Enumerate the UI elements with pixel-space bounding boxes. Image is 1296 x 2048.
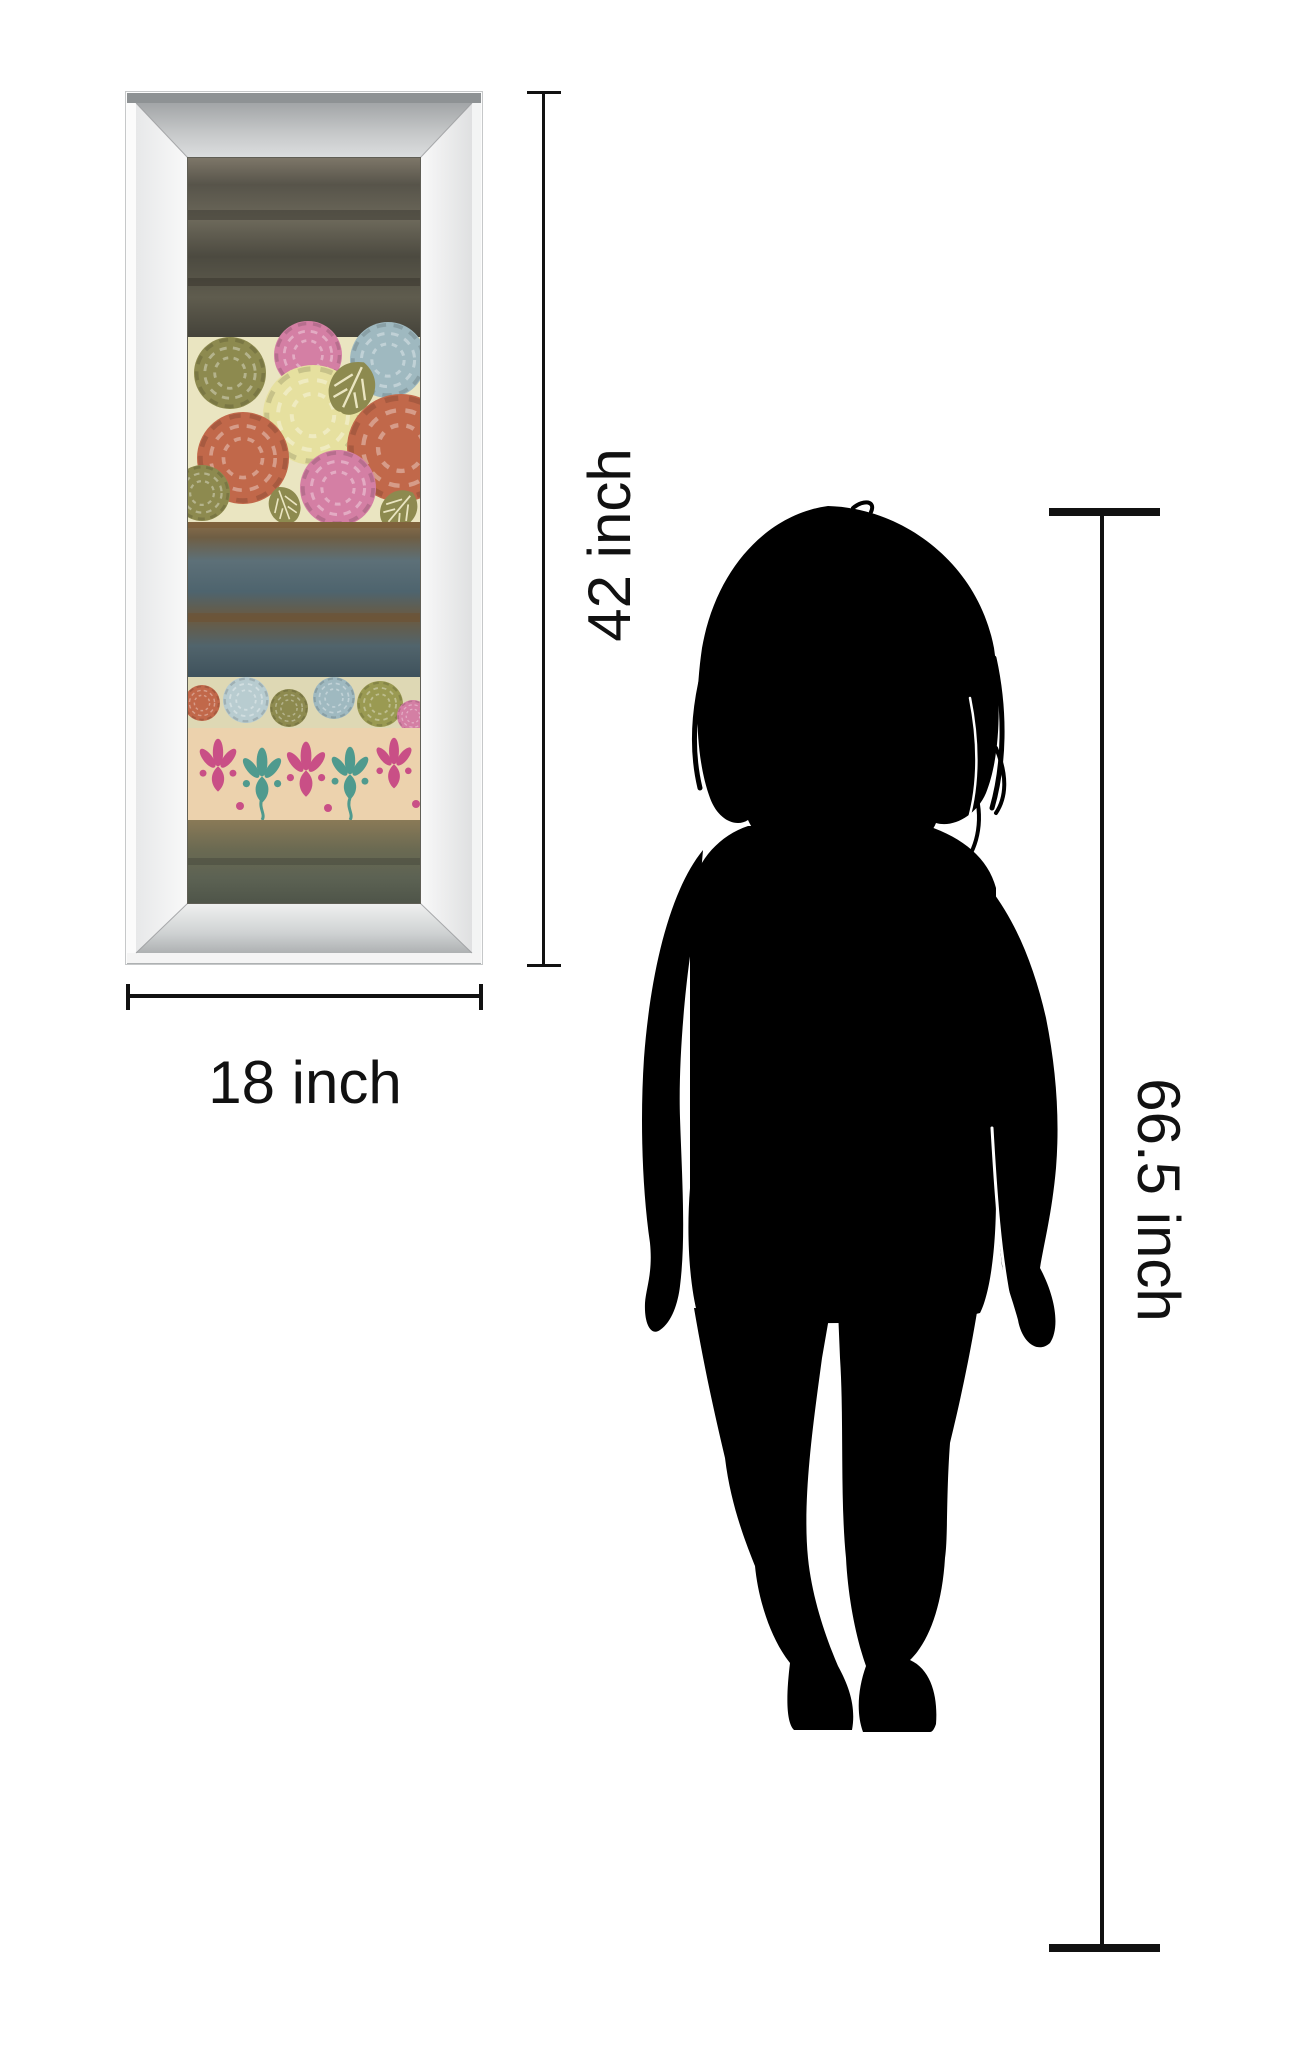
size-comparison-image: 42 inch 18 inch 66.5 inch xyxy=(0,0,1296,2048)
person-height-bottom-tick xyxy=(1049,1944,1160,1952)
art-width-dimension-line xyxy=(128,994,483,998)
print-artwork xyxy=(174,158,455,903)
framed-wall-art xyxy=(125,91,483,965)
art-width-right-tick xyxy=(479,984,483,1010)
art-width-dimension-label: 18 inch xyxy=(208,1053,401,1113)
art-height-top-tick xyxy=(527,91,561,94)
person-height-dimension-line xyxy=(1100,512,1104,1948)
art-width-left-tick xyxy=(126,984,130,1010)
art-height-dimension-line xyxy=(542,93,545,967)
art-height-bottom-tick xyxy=(527,964,561,967)
woman-silhouette xyxy=(598,498,1068,1743)
person-height-dimension-label: 66.5 inch xyxy=(1128,1078,1188,1322)
